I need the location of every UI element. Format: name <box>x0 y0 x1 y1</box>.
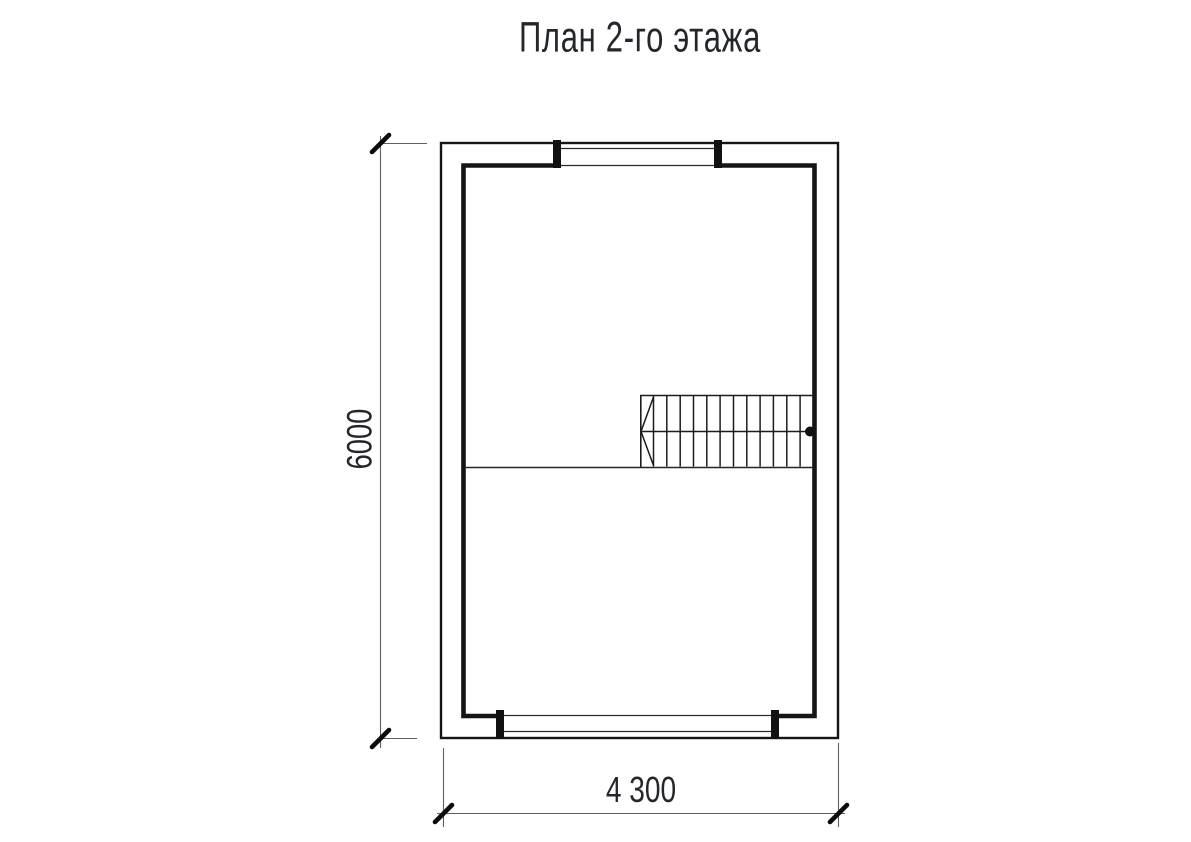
outer-wall-outline <box>441 143 838 738</box>
floor-plan-sheet: План 2-го этажа 6000 4 300 <box>0 0 1191 842</box>
stairs <box>640 395 815 467</box>
floor-plan-drawing <box>0 0 1191 842</box>
dimension-height-label: 6000 <box>343 409 378 470</box>
window-top-left-jamb <box>553 140 561 168</box>
inner-wall-outline <box>464 166 815 717</box>
page-title: План 2-го этажа <box>519 17 761 60</box>
walls <box>441 143 838 738</box>
window-bottom-left-jamb <box>496 710 504 739</box>
stair-direction-endpoint-dot <box>805 427 815 437</box>
window-bottom-right-jamb <box>771 710 779 739</box>
dimension-vertical <box>372 135 427 748</box>
window-top-right-jamb <box>714 140 722 168</box>
window-bottom <box>496 710 779 739</box>
dimension-width-label: 4 300 <box>606 772 676 808</box>
